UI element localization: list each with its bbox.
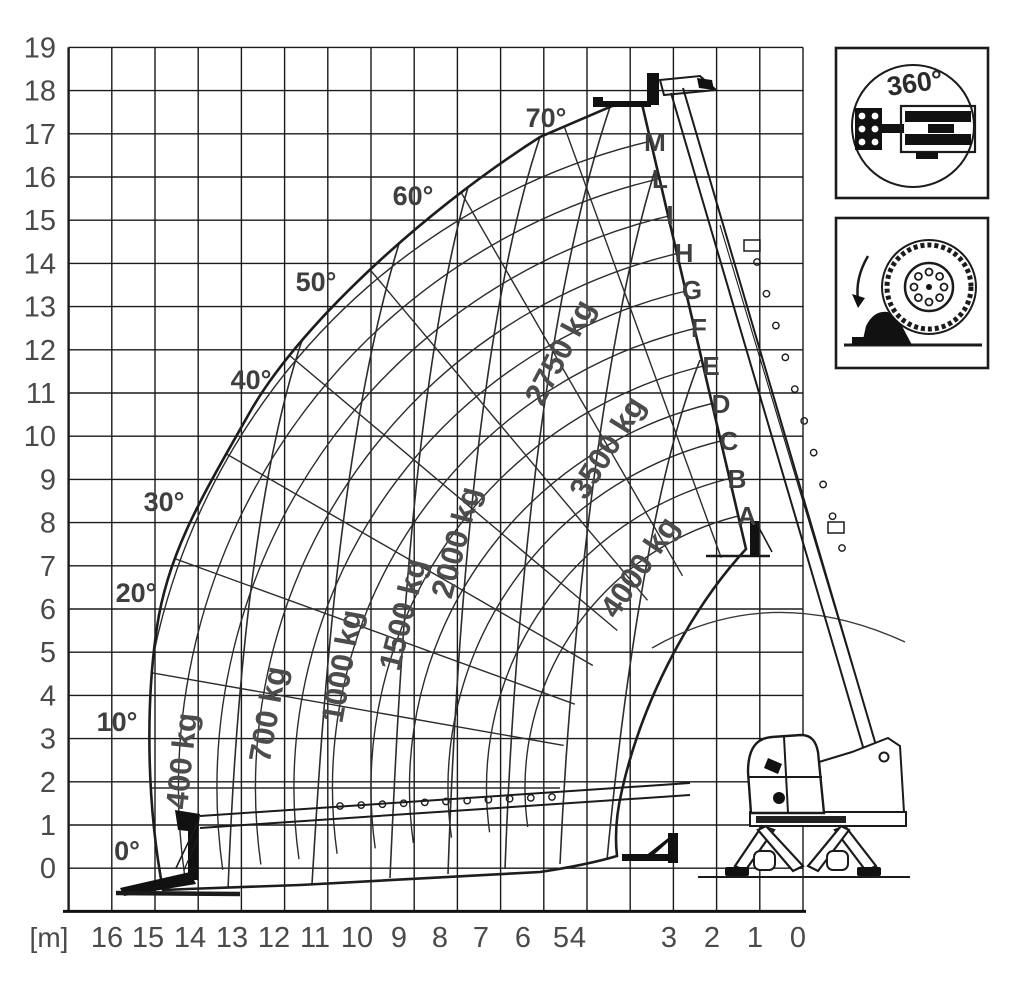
- boom-extension-letter: G: [682, 275, 702, 305]
- boom-holes: [754, 259, 845, 551]
- stabilizer-pad-icon: [852, 312, 912, 345]
- boom-extension-letter: D: [712, 389, 731, 419]
- x-tick: 2: [704, 922, 720, 954]
- wheel: [827, 851, 848, 870]
- x-tick: 14: [174, 922, 206, 954]
- boom-extension-letter: H: [675, 238, 694, 268]
- boom-angle-label: 10°: [97, 707, 138, 737]
- boom-extension-letter: L: [652, 164, 668, 194]
- chassis: [698, 735, 910, 877]
- x-tick: 16: [91, 922, 123, 954]
- y-tick: 17: [24, 119, 56, 151]
- y-tick: 5: [40, 637, 56, 669]
- x-tick: 6: [515, 922, 531, 954]
- capacity-label: 2000 kg: [424, 483, 487, 602]
- x-tick: 0: [790, 922, 806, 954]
- y-tick: 13: [24, 292, 56, 324]
- y-tick: 3: [40, 724, 56, 756]
- boom-extension-letter: A: [738, 501, 757, 531]
- x-tick: 8: [432, 922, 448, 954]
- y-tick: 14: [24, 248, 56, 280]
- tyre-icon: [882, 240, 976, 334]
- y-tick: 18: [24, 76, 56, 108]
- telehandler-drawing: [116, 73, 910, 896]
- wheel: [754, 851, 775, 870]
- y-tick: 16: [24, 162, 56, 194]
- load-chart-page: 191817161514131211109876543210 161514131…: [0, 0, 1024, 981]
- boom-head-cap: [697, 78, 714, 90]
- boom-angle-label: 0°: [114, 836, 140, 866]
- y-tick: 2: [40, 767, 56, 799]
- boom-extension-letter: M: [644, 127, 666, 157]
- y-tick: 0: [40, 853, 56, 885]
- slew-360-pictogram: 360°: [836, 48, 988, 198]
- capacity-label: 700 kg: [242, 664, 293, 765]
- boom-extension-letter: E: [702, 351, 719, 381]
- x-tick: 13: [216, 922, 248, 954]
- y-tick: 12: [24, 335, 56, 367]
- boom-extension-letter: B: [728, 464, 747, 494]
- capacity-label: 400 kg: [159, 711, 204, 811]
- y-tick: 15: [24, 205, 56, 237]
- rotation-badge-label: 360°: [885, 64, 944, 101]
- y-tick: 11: [26, 378, 56, 410]
- boom-angle-label: 70°: [526, 103, 567, 133]
- y-tick: 4: [40, 680, 56, 712]
- y-tick: 7: [40, 551, 56, 583]
- down-arrow-icon: [852, 256, 868, 308]
- x-tick: 9: [391, 922, 407, 954]
- x-tick: 10: [341, 922, 373, 954]
- x-tick: 12: [258, 922, 290, 954]
- y-tick: 8: [40, 508, 56, 540]
- y-tick: 19: [24, 32, 56, 64]
- boom-angle-label: 30°: [144, 487, 185, 517]
- fork-sweep-arc: [652, 612, 905, 648]
- boom-angle-label: 20°: [116, 578, 157, 608]
- boom-angle-label: 60°: [393, 181, 434, 211]
- capacity-label: 1500 kg: [372, 555, 433, 674]
- x-tick: 7: [473, 922, 489, 954]
- y-tick: 10: [24, 421, 56, 453]
- x-axis-labels: 161514131211109876543210: [91, 922, 806, 954]
- x-tick: 15: [132, 922, 164, 954]
- raised-boom: [660, 76, 890, 798]
- y-tick: 1: [40, 810, 56, 842]
- telehandler-top-view-icon: [855, 106, 975, 159]
- y-axis-labels: 191817161514131211109876543210: [24, 32, 56, 885]
- boom-extension-letter: F: [691, 313, 707, 343]
- capacity-chart: 191817161514131211109876543210 161514131…: [0, 0, 1024, 981]
- boom-angle-label: 50°: [296, 267, 337, 297]
- y-tick: 6: [40, 594, 56, 626]
- boom-extension-letter: I: [666, 200, 673, 230]
- x-tick: 1: [747, 922, 763, 954]
- boom-extension-letter: C: [720, 426, 739, 456]
- stabilizer-foot: [725, 867, 749, 876]
- x-tick: 3: [661, 922, 677, 954]
- turret-body: [819, 738, 904, 812]
- stabilizer-foot: [857, 867, 881, 876]
- stabilizer-support-pictogram: [836, 218, 988, 368]
- boom-angle-label: 40°: [231, 365, 272, 395]
- x-tick: 4: [570, 922, 586, 954]
- y-tick: 9: [40, 464, 56, 496]
- capacity-label: 1000 kg: [315, 607, 369, 725]
- x-tick: 11: [300, 922, 330, 954]
- capacity-label: 3500 kg: [562, 390, 652, 505]
- x-tick: 5: [553, 922, 569, 954]
- x-axis-unit: [m]: [30, 922, 69, 953]
